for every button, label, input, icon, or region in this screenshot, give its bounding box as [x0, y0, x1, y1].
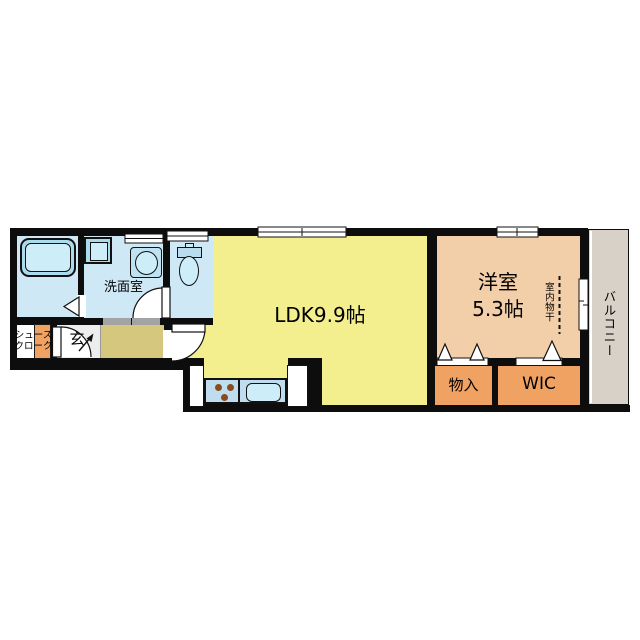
kitchen-sink	[246, 383, 281, 402]
label-storage: 物入	[435, 377, 492, 394]
label-entrance: 玄	[62, 331, 92, 348]
kitchen-counter	[204, 378, 287, 404]
label-western-room: 洋室 5.3帖	[437, 269, 559, 323]
label-washroom: 洗面室	[84, 281, 163, 296]
room-ldk-kitchen-alcove	[204, 358, 288, 378]
washroom-sliding-door	[103, 318, 160, 325]
bathtub-inner-line	[25, 243, 71, 272]
label-shoe-closet: シュース クローク	[12, 330, 55, 352]
room-ldk-entry	[172, 325, 213, 358]
room-ldk-main	[213, 236, 427, 358]
label-western-size: 5.3帖	[437, 296, 559, 323]
label-shoe-closet-line2: クローク	[12, 341, 55, 352]
washing-machine	[90, 242, 108, 261]
kitchen-counter-divider	[238, 380, 240, 402]
label-shoe-closet-line1: シュース	[12, 330, 55, 341]
room-hallway	[100, 325, 164, 358]
washing-machine-pan	[84, 237, 112, 264]
stove-burner	[221, 394, 228, 401]
sink-basin	[135, 251, 158, 275]
label-balcony: バルコニー	[601, 274, 615, 374]
floor-plan: 洗面室 玄 シュース クローク LDK9.9帖 洋室 5.3帖 室内物干 バルコ…	[0, 0, 640, 640]
label-wic: WIC	[498, 375, 580, 395]
bathtub	[20, 238, 76, 277]
toilet-bowl	[179, 256, 199, 286]
stove-burner	[227, 384, 234, 391]
label-ldk: LDK9.9帖	[213, 304, 427, 327]
label-indoor-drying: 室内物干	[542, 271, 553, 333]
stove-burner	[215, 384, 222, 391]
washroom-sink	[130, 247, 162, 278]
label-western-name: 洋室	[437, 269, 559, 296]
kitchen-side-window-right	[288, 366, 307, 406]
balcony-inner-gap	[590, 231, 592, 403]
room-ldk-lower	[322, 358, 427, 405]
kitchen-side-window-left	[190, 366, 203, 406]
